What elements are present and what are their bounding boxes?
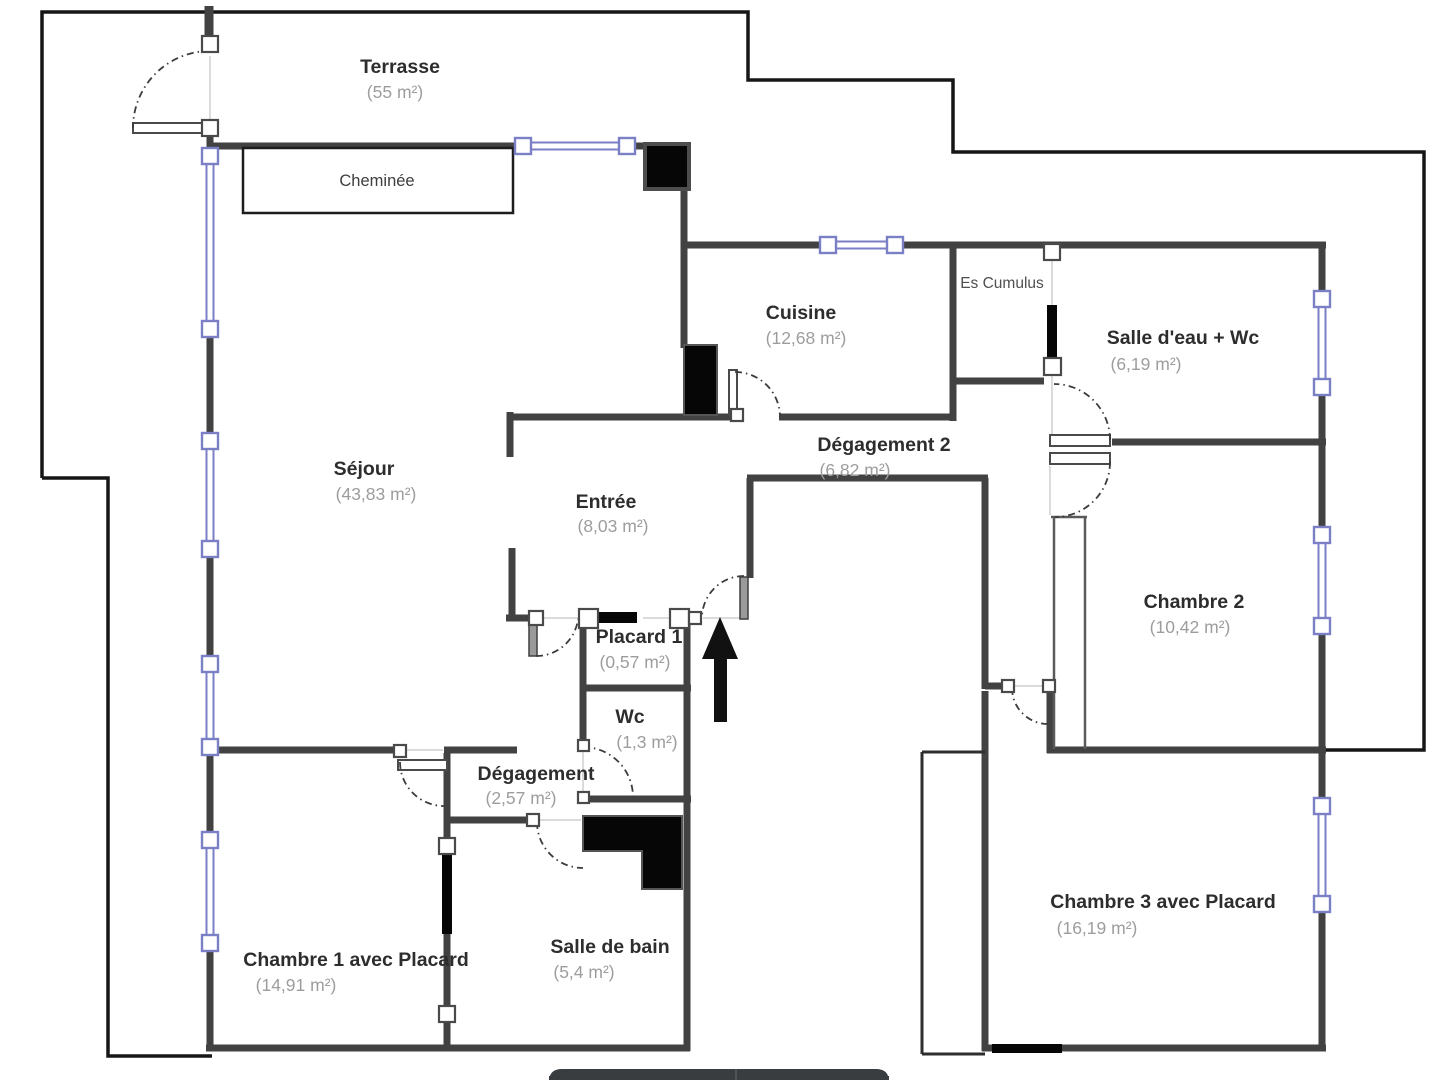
flue-box [645,144,689,189]
room-label-wc: Wc [615,706,644,728]
entrance-door-arc [702,576,744,618]
room-label-salledebain: Salle de bain [550,936,669,958]
annotation-cheminee: Cheminée [339,172,414,190]
chambre2-closet-outline [1051,517,1087,749]
salledeau-door-arc [1054,384,1110,440]
room-area-sejour: (43,83 m²) [336,484,417,504]
cumulus-door [1047,305,1057,357]
room-label-entree: Entrée [576,491,637,513]
room-label-placard1: Placard 1 [596,626,683,648]
bathroom-fixture [583,816,682,889]
room-area-terrasse: (55 m²) [367,82,423,102]
window-layer [202,138,1330,951]
room-label-chambre1: Chambre 1 avec Placard [243,949,468,971]
chambre1-placard-door [442,851,452,934]
room-label-terrasse: Terrasse [360,56,440,78]
room-label-salledeau-wc: Salle d'eau + Wc [1107,327,1260,349]
room-area-salledeau-wc: (6,19 m²) [1111,354,1182,374]
room-label-chambre3: Chambre 3 avec Placard [1050,891,1275,913]
floor-plan-svg: Terrasse (55 m²) Cuisine (12,68 m²) Sall… [0,0,1453,1080]
room-label-sejour: Séjour [334,458,395,480]
room-label-chambre2: Chambre 2 [1144,591,1245,613]
room-area-chambre3: (16,19 m²) [1057,918,1138,938]
floor-plan-screenshot: Terrasse (55 m²) Cuisine (12,68 m²) Sall… [0,0,1453,1080]
entrance-door-leaf [740,577,748,619]
bathroom-door-arc [537,822,583,868]
bottom-taskbar[interactable] [549,1069,889,1080]
placard1-sliding-door [599,612,637,623]
chambre2-door-leaf [1050,453,1110,464]
room-area-chambre2: (10,42 m²) [1150,617,1231,637]
salledeau-door-leaf [1050,435,1110,446]
room-area-cuisine: (12,68 m²) [766,328,847,348]
room-area-placard1: (0,57 m²) [600,652,671,672]
room-area-entree: (8,03 m²) [578,516,649,536]
chambre3-placard-panel [992,1044,1062,1053]
room-area-chambre1: (14,91 m²) [256,975,337,995]
window-endcaps [202,138,1330,951]
chambre1-door-leaf [398,760,447,770]
room-label-cuisine: Cuisine [766,302,837,324]
room-area-degagement2: (6,82 m²) [820,460,891,480]
terrace-door-leaf [133,123,205,133]
chambre3-placard-outline [922,752,985,1054]
room-area-salledebain: (5,4 m²) [553,962,614,982]
room-label-degagement: Dégagement [477,763,595,785]
chambre3-door-arc [1012,688,1048,724]
entrance-arrow-icon [702,617,738,722]
room-area-wc: (1,3 m²) [616,732,677,752]
chambre2-door-arc [1055,462,1110,517]
room-area-degagement: (2,57 m²) [486,788,557,808]
annotation-es-cumulus: Es Cumulus [960,275,1044,292]
door-leaves [133,123,1110,770]
room-label-degagement2: Dégagement 2 [817,434,950,456]
terrace-door-arc [133,51,210,128]
kitchen-duct [684,345,717,415]
